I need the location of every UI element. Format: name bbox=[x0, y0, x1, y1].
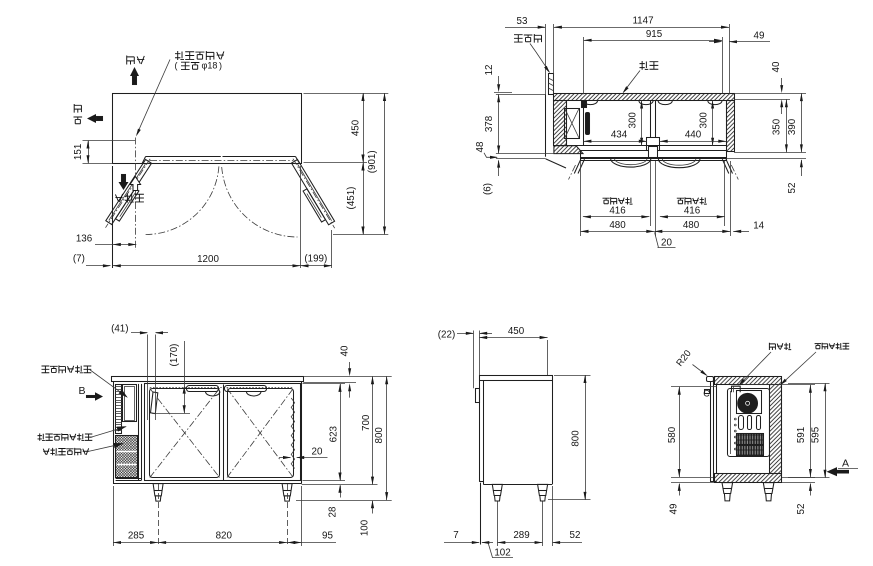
svg-text:(170): (170) bbox=[169, 344, 180, 367]
svg-text:B: B bbox=[78, 385, 85, 397]
svg-text:591: 591 bbox=[796, 427, 807, 443]
svg-text:φ18: φ18 bbox=[202, 61, 218, 71]
svg-text:1147: 1147 bbox=[632, 16, 653, 27]
svg-text:300: 300 bbox=[698, 112, 709, 129]
svg-text:434: 434 bbox=[611, 129, 628, 140]
svg-text:480: 480 bbox=[683, 220, 700, 231]
svg-text:350: 350 bbox=[772, 118, 783, 135]
svg-text:(199): (199) bbox=[304, 254, 327, 265]
svg-text:450: 450 bbox=[351, 119, 362, 136]
svg-text:52: 52 bbox=[570, 530, 581, 541]
svg-text:820: 820 bbox=[216, 531, 233, 542]
svg-text:700: 700 bbox=[361, 414, 372, 431]
svg-text:800: 800 bbox=[571, 430, 582, 447]
svg-text:300: 300 bbox=[627, 112, 638, 129]
svg-text:623: 623 bbox=[329, 425, 340, 442]
svg-text:49: 49 bbox=[669, 504, 680, 515]
svg-text:53: 53 bbox=[517, 16, 528, 27]
svg-text:14: 14 bbox=[753, 221, 764, 232]
svg-text:100: 100 bbox=[360, 519, 371, 536]
svg-text:102: 102 bbox=[494, 548, 510, 559]
svg-text:(: ( bbox=[175, 61, 178, 71]
svg-text:(901): (901) bbox=[367, 150, 378, 173]
svg-text:20: 20 bbox=[661, 237, 672, 248]
svg-text:C: C bbox=[703, 389, 710, 399]
svg-text:52: 52 bbox=[796, 504, 807, 515]
svg-text:(451): (451) bbox=[346, 187, 357, 210]
svg-text:390: 390 bbox=[787, 118, 798, 135]
svg-text:40: 40 bbox=[340, 345, 351, 356]
svg-text:285: 285 bbox=[128, 531, 145, 542]
svg-text:A: A bbox=[842, 458, 849, 470]
svg-text:(6): (6) bbox=[483, 183, 494, 195]
svg-text:416: 416 bbox=[684, 206, 701, 217]
svg-text:580: 580 bbox=[667, 426, 678, 443]
svg-text:1200: 1200 bbox=[197, 254, 219, 265]
svg-text:49: 49 bbox=[754, 31, 765, 42]
svg-text:151: 151 bbox=[73, 144, 84, 160]
svg-text:(7): (7) bbox=[73, 254, 85, 265]
svg-text:28: 28 bbox=[328, 506, 339, 517]
svg-text:440: 440 bbox=[685, 129, 702, 140]
svg-text:800: 800 bbox=[374, 427, 385, 444]
svg-text:450: 450 bbox=[508, 326, 525, 337]
svg-text:95: 95 bbox=[322, 531, 333, 542]
svg-text:595: 595 bbox=[811, 426, 822, 443]
svg-text:7: 7 bbox=[453, 530, 458, 541]
svg-text:52: 52 bbox=[787, 183, 798, 194]
svg-text:915: 915 bbox=[646, 29, 663, 40]
svg-text:378: 378 bbox=[484, 115, 495, 132]
svg-text:(22): (22) bbox=[438, 330, 455, 341]
svg-text:136: 136 bbox=[76, 234, 93, 245]
svg-text:289: 289 bbox=[513, 530, 529, 541]
svg-text:40: 40 bbox=[771, 61, 782, 72]
svg-text:480: 480 bbox=[609, 220, 626, 231]
svg-text:20: 20 bbox=[312, 447, 323, 458]
svg-text:48: 48 bbox=[475, 141, 486, 152]
svg-text:(41): (41) bbox=[111, 324, 128, 335]
svg-text:416: 416 bbox=[609, 206, 626, 217]
svg-text:12: 12 bbox=[484, 65, 495, 76]
svg-text:): ) bbox=[219, 61, 222, 71]
